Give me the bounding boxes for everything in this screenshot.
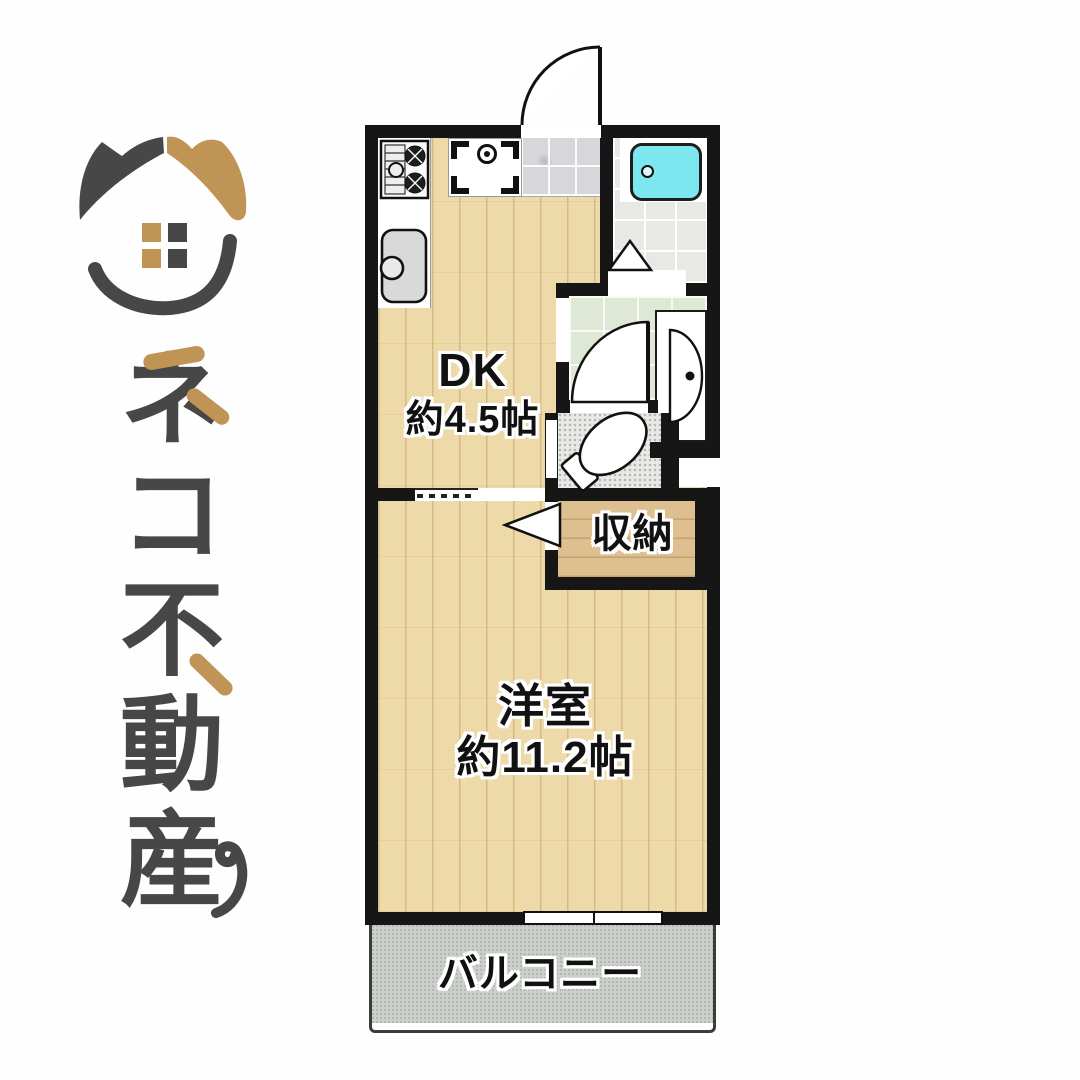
dk-label-name: DK <box>385 344 560 396</box>
western-room-label: 洋室 約11.2帖 <box>425 680 665 784</box>
plan-symbols <box>0 0 1080 1080</box>
floorplan-poster: ネ コ 不 動 産 <box>0 0 1080 1080</box>
dk-label-size: 約4.5帖 <box>385 396 560 444</box>
western-room-label-name: 洋室 <box>425 680 665 732</box>
floor-plan: DK 約4.5帖 洋室 約11.2帖 収納 バルコニー <box>0 0 1080 1080</box>
dk-label: DK 約4.5帖 <box>385 344 560 444</box>
entrance-door-arc-icon <box>522 47 600 125</box>
balcony-label: バルコニー <box>415 951 665 997</box>
western-room-label-size: 約11.2帖 <box>425 732 665 784</box>
closet-label: 収納 <box>560 511 705 557</box>
sink-icon <box>381 230 426 302</box>
stove-icon <box>381 141 428 198</box>
washbasin-bowl-icon <box>670 330 702 422</box>
washroom-door-arc-icon <box>572 322 648 402</box>
toilet-icon <box>556 400 659 497</box>
closet-door-icon <box>505 504 560 546</box>
bathroom-folding-door-icon <box>609 241 651 270</box>
